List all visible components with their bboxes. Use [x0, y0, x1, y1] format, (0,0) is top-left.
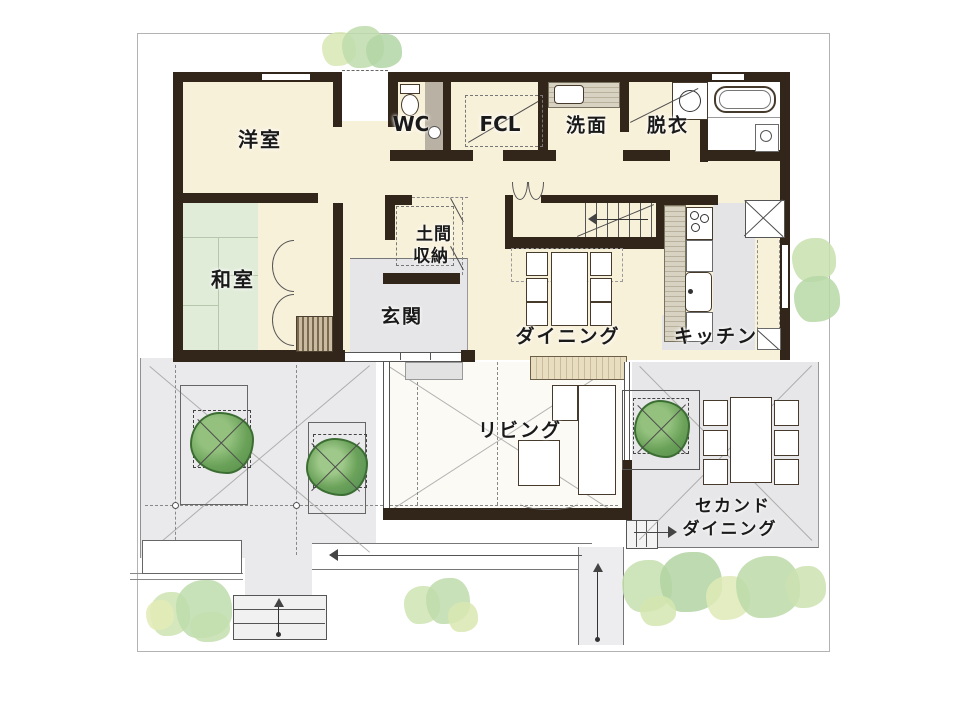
washer-drum-icon — [679, 90, 701, 112]
dining-chair — [526, 252, 548, 276]
bath-vanity-bowl — [760, 130, 772, 142]
arrow-origin-dot — [276, 632, 281, 637]
window — [712, 72, 744, 82]
bush — [146, 600, 174, 630]
terrace-edge-line — [130, 573, 243, 580]
stair-riser — [607, 203, 608, 237]
wall — [173, 193, 318, 203]
downlight-icon — [293, 502, 300, 509]
living-table — [518, 440, 560, 486]
wall — [390, 150, 473, 161]
paper-holder-icon — [428, 126, 441, 139]
wall — [383, 273, 460, 284]
room-label-dining: ダイニング — [515, 322, 620, 349]
entrance-door — [345, 352, 461, 362]
tatami-line — [183, 305, 218, 306]
burner-icon — [700, 214, 709, 223]
tatami-line — [218, 237, 219, 352]
room-label-dressing: 脱衣 — [647, 111, 689, 138]
rug-arc — [520, 496, 578, 510]
wall — [173, 72, 183, 360]
wall — [503, 150, 556, 161]
room-label-washroom: 洗面 — [566, 111, 608, 138]
step-line — [233, 609, 325, 610]
sofa-icon — [578, 385, 616, 495]
sd-arrow-line — [634, 532, 670, 533]
bush — [786, 566, 826, 608]
wall — [173, 72, 262, 82]
stair-riser — [629, 203, 630, 237]
dining-chair — [774, 430, 799, 456]
wall — [541, 195, 665, 203]
tatami-line — [183, 237, 258, 238]
room-label-fcl: FCL — [479, 112, 520, 136]
wall — [333, 72, 342, 127]
downlight-icon — [172, 502, 179, 509]
door-tick — [400, 352, 401, 360]
dining-chair — [526, 278, 548, 302]
room-label-western: 洋室 — [238, 124, 282, 153]
left-arrow-icon — [582, 213, 597, 225]
wash-basin-icon — [554, 85, 584, 104]
second-dining-table — [730, 397, 772, 483]
dining-chair — [590, 252, 612, 276]
terrace-walk — [245, 558, 312, 595]
floor-plan: 洋室 和室 WC FCL 洗面 脱衣 土間 収納 玄関 ダイニング キッチン リ… — [0, 0, 960, 720]
walkway-arrow-line — [332, 555, 582, 556]
porch-step — [405, 362, 463, 380]
bath-divider — [708, 117, 780, 118]
eave-dashed-line — [296, 365, 297, 555]
room-label-second-dining-1: セカンド — [695, 492, 771, 517]
stair-riser — [618, 203, 619, 237]
room-label-japanese: 和室 — [211, 264, 255, 293]
room-label-second-dining-2: ダイニング — [683, 515, 778, 540]
bathtub-inner — [719, 90, 771, 109]
wall — [333, 203, 343, 360]
eave-dashed-line — [417, 362, 418, 505]
burner-icon — [690, 211, 699, 220]
dining-chair — [590, 278, 612, 302]
dining-chair — [703, 400, 728, 426]
bush — [366, 34, 402, 68]
garden-planter — [142, 540, 242, 574]
up-arrow-icon — [593, 558, 603, 572]
room-label-doma-2: 収納 — [413, 242, 449, 267]
window — [780, 245, 790, 308]
room-label-kitchen: キッチン — [674, 322, 758, 349]
bush — [640, 596, 676, 626]
wall — [620, 82, 629, 132]
room-label-entrance: 玄関 — [381, 302, 423, 329]
living-window — [383, 362, 390, 508]
porch-niche — [342, 70, 388, 121]
dining-chair — [703, 430, 728, 456]
counter-top — [686, 240, 713, 272]
closet-wood-panel — [296, 316, 333, 352]
dining-table — [551, 252, 588, 326]
burner-icon — [691, 223, 700, 232]
wall — [623, 150, 670, 161]
dining-chair — [774, 459, 799, 485]
step-line — [636, 520, 637, 547]
bush — [794, 276, 840, 322]
engawa-deck — [530, 356, 627, 380]
wall — [443, 82, 451, 150]
bush — [190, 612, 230, 642]
doma-dashed-top — [412, 197, 468, 198]
wall — [505, 195, 513, 237]
room-label-wc: WC — [393, 112, 430, 136]
step-line — [233, 623, 325, 624]
up-arrow-icon — [274, 593, 284, 607]
eave-dashed-line — [175, 365, 176, 555]
room-label-living: リビング — [478, 416, 562, 443]
walkway — [312, 543, 592, 570]
dining-chair — [774, 400, 799, 426]
path-arrow-line — [597, 565, 598, 639]
stair-riser — [651, 203, 652, 237]
wall — [385, 195, 395, 240]
faucet-icon — [688, 289, 693, 294]
doma-dashed-right — [462, 197, 463, 275]
toilet-tank — [400, 84, 420, 94]
right-arrow-icon — [668, 526, 683, 538]
wall — [461, 350, 475, 362]
bush — [448, 602, 478, 632]
arrow-origin-dot — [595, 637, 600, 642]
door-tick — [430, 352, 431, 360]
dining-chair — [703, 459, 728, 485]
wall — [383, 508, 622, 520]
window — [262, 72, 310, 82]
left-arrow-icon — [323, 549, 338, 561]
stair-arrow-line — [590, 219, 648, 220]
